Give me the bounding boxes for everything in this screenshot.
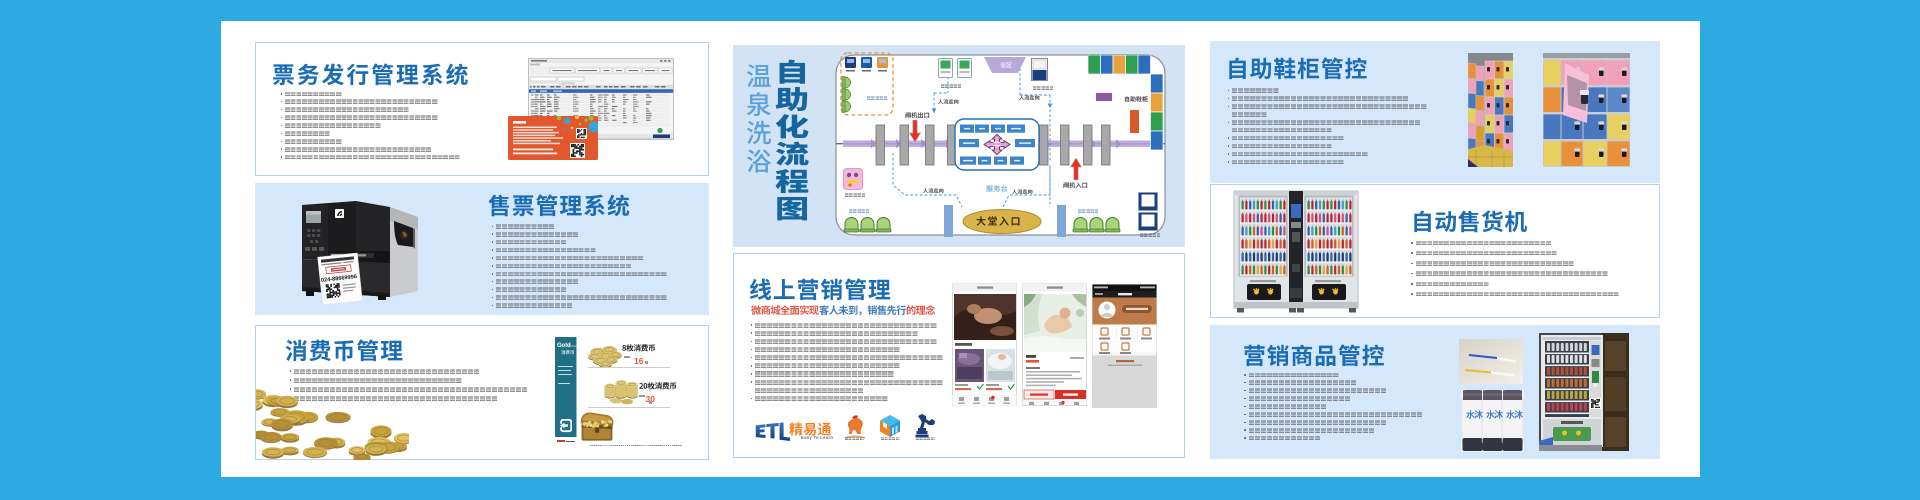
svg-text:Gold: Gold <box>557 343 571 349</box>
svg-text:Coins: Coins <box>570 344 577 348</box>
